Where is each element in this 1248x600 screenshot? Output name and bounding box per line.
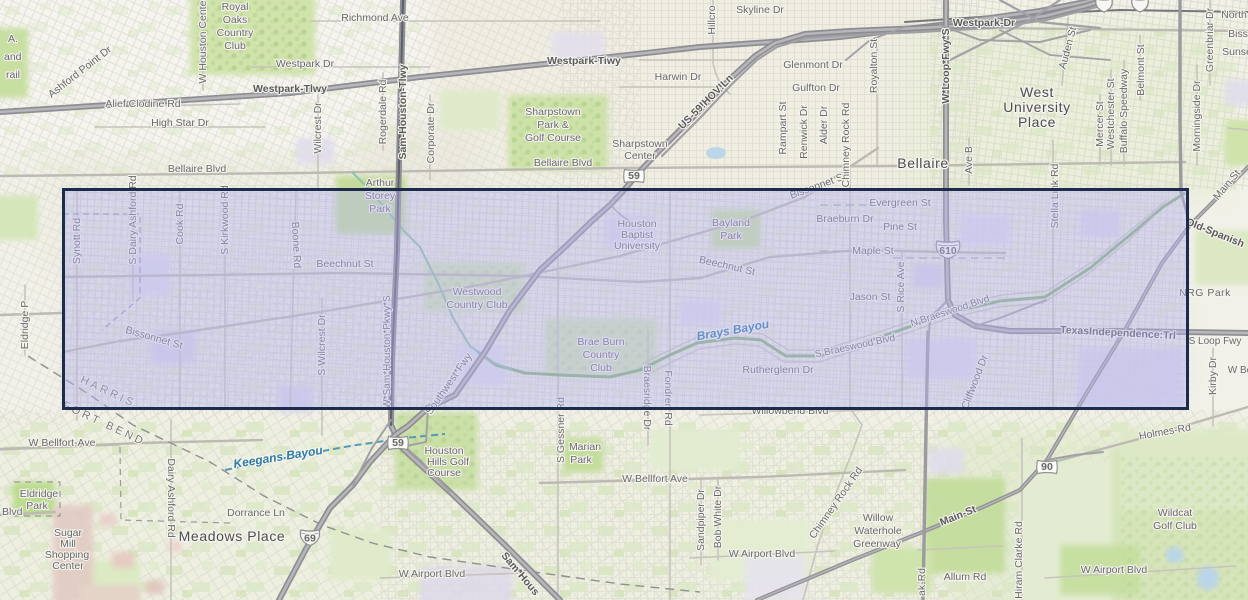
svg-text:W Airport Blvd: W Airport Blvd: [399, 568, 466, 580]
svg-text:W Airport Blvd: W Airport Blvd: [1081, 564, 1148, 576]
svg-text:High Star Dr: High Star Dr: [151, 117, 209, 129]
svg-text:Eldridge: Eldridge: [20, 488, 59, 500]
svg-text:Golf Course: Golf Course: [525, 132, 581, 144]
svg-text:Wilcrest Dr: Wilcrest Dr: [312, 102, 324, 154]
svg-text:Westpark Dr: Westpark Dr: [276, 58, 335, 70]
svg-text:Royalton St: Royalton St: [868, 39, 880, 93]
svg-text:Ave B: Ave B: [963, 146, 975, 174]
svg-text:A.: A.: [8, 33, 18, 45]
svg-text:Chimney Rock Rd: Chimney Rock Rd: [840, 103, 852, 188]
svg-text:Eldridge P: Eldridge P: [19, 301, 31, 349]
svg-text:Bellaire Blvd: Bellaire Blvd: [168, 163, 227, 175]
svg-text:W Be: W Be: [1228, 365, 1248, 376]
svg-text:Rampart St: Rampart St: [777, 101, 789, 154]
svg-text:Kirby Dr: Kirby Dr: [1207, 357, 1219, 395]
svg-text:Sandpiper Dr: Sandpiper Dr: [695, 489, 707, 551]
svg-text:S Loop Fwy: S Loop Fwy: [1189, 336, 1242, 347]
svg-text:Park &: Park &: [537, 119, 569, 131]
svg-text:Bellaire Blvd: Bellaire Blvd: [534, 157, 593, 169]
svg-text:Alder Dr: Alder Dr: [818, 105, 830, 144]
svg-text:Golf Club: Golf Club: [1153, 520, 1197, 532]
svg-text:North: North: [1221, 9, 1247, 21]
svg-text:Course: Course: [427, 467, 461, 479]
svg-text:Club: Club: [224, 40, 246, 52]
svg-text:Westpark-Dr: Westpark-Dr: [953, 17, 1015, 29]
svg-text:Westchester St: Westchester St: [1105, 78, 1117, 149]
svg-text:Center: Center: [624, 150, 656, 162]
svg-text:Dorrance Ln: Dorrance Ln: [227, 507, 285, 519]
svg-text:59: 59: [628, 170, 640, 182]
svg-text:and: and: [4, 51, 22, 63]
svg-text:W Bellfort-Ave: W Bellfort-Ave: [29, 437, 96, 449]
svg-text:Greenway: Greenway: [853, 538, 902, 550]
svg-text:Marian: Marian: [569, 441, 601, 453]
svg-text:Center: Center: [52, 560, 84, 572]
svg-text:rail: rail: [6, 69, 20, 81]
svg-text:Bellaire: Bellaire: [897, 155, 949, 171]
svg-text:Wildcat: Wildcat: [1158, 507, 1193, 519]
svg-text:90: 90: [1041, 461, 1053, 473]
svg-text:Harwin Dr: Harwin Dr: [655, 71, 702, 83]
svg-text:Willow: Willow: [863, 512, 894, 524]
svg-text:Waterhole: Waterhole: [854, 525, 902, 537]
svg-text:Buffalo Speedway: Buffalo Speedway: [1118, 68, 1130, 153]
svg-text:Allum Rd: Allum Rd: [944, 571, 987, 583]
svg-text:Arthur: Arthur: [366, 177, 395, 189]
svg-text:Biss: Biss: [1228, 28, 1248, 40]
svg-text:Sharpstown: Sharpstown: [525, 106, 581, 118]
svg-text:ak-Rd: ak-Rd: [916, 568, 928, 596]
svg-text:Country: Country: [217, 27, 255, 39]
svg-text:Oaks: Oaks: [223, 14, 248, 26]
svg-text:Skyline Dr: Skyline Dr: [736, 4, 784, 16]
svg-text:W Bellfort Ave: W Bellfort Ave: [622, 473, 688, 485]
svg-text:Royal: Royal: [222, 1, 249, 13]
svg-text:59: 59: [392, 437, 404, 449]
svg-text:University: University: [1003, 99, 1070, 115]
svg-text:Westpark-Tiwy: Westpark-Tiwy: [547, 55, 621, 67]
svg-text:Hiram Clarke Rd: Hiram Clarke Rd: [1013, 521, 1025, 599]
svg-text:Place: Place: [1018, 114, 1056, 130]
svg-text:Alief Clodine Rd: Alief Clodine Rd: [105, 98, 180, 110]
svg-text:W*Loop*Fwy*S: W*Loop*Fwy*S: [940, 28, 952, 103]
svg-text:Gulfton Dr: Gulfton Dr: [792, 82, 840, 94]
svg-text:69: 69: [304, 533, 316, 545]
svg-text:Glenmont Dr: Glenmont Dr: [783, 59, 843, 71]
svg-text:Sharpstown: Sharpstown: [612, 138, 668, 150]
svg-text:Greenbriar Dr: Greenbriar Dr: [1204, 7, 1216, 72]
svg-text:Park: Park: [26, 500, 48, 512]
svg-text:Park: Park: [570, 454, 592, 466]
svg-text:Rogerdale Rd: Rogerdale Rd: [377, 79, 389, 144]
svg-text:W Houston Cente: W Houston Cente: [197, 0, 209, 83]
svg-text:Sam-Houston-Tlwy: Sam-Houston-Tlwy: [397, 64, 409, 159]
svg-text:Belmont St: Belmont St: [1135, 44, 1147, 95]
svg-text:Corporate Dr: Corporate Dr: [425, 102, 437, 163]
svg-text:Hillcro: Hillcro: [706, 5, 718, 34]
svg-text:Richmond Ave: Richmond Ave: [341, 12, 409, 24]
svg-text:Blvd: Blvd: [2, 506, 23, 518]
svg-text:Westpark-Tlwy: Westpark-Tlwy: [253, 83, 327, 95]
svg-text:Meadows Place: Meadows Place: [179, 528, 286, 544]
svg-text:Morningside Dr: Morningside Dr: [1191, 80, 1203, 152]
svg-text:W Airport Blvd: W Airport Blvd: [729, 548, 796, 560]
svg-text:Dairy Ashford Rd: Dairy Ashford Rd: [165, 458, 177, 538]
svg-text:Renwick Dr: Renwick Dr: [798, 105, 810, 159]
svg-text:West: West: [1020, 84, 1054, 100]
svg-text:Bob White Dr: Bob White Dr: [712, 485, 724, 548]
svg-text:Sunse: Sunse: [1222, 46, 1248, 58]
